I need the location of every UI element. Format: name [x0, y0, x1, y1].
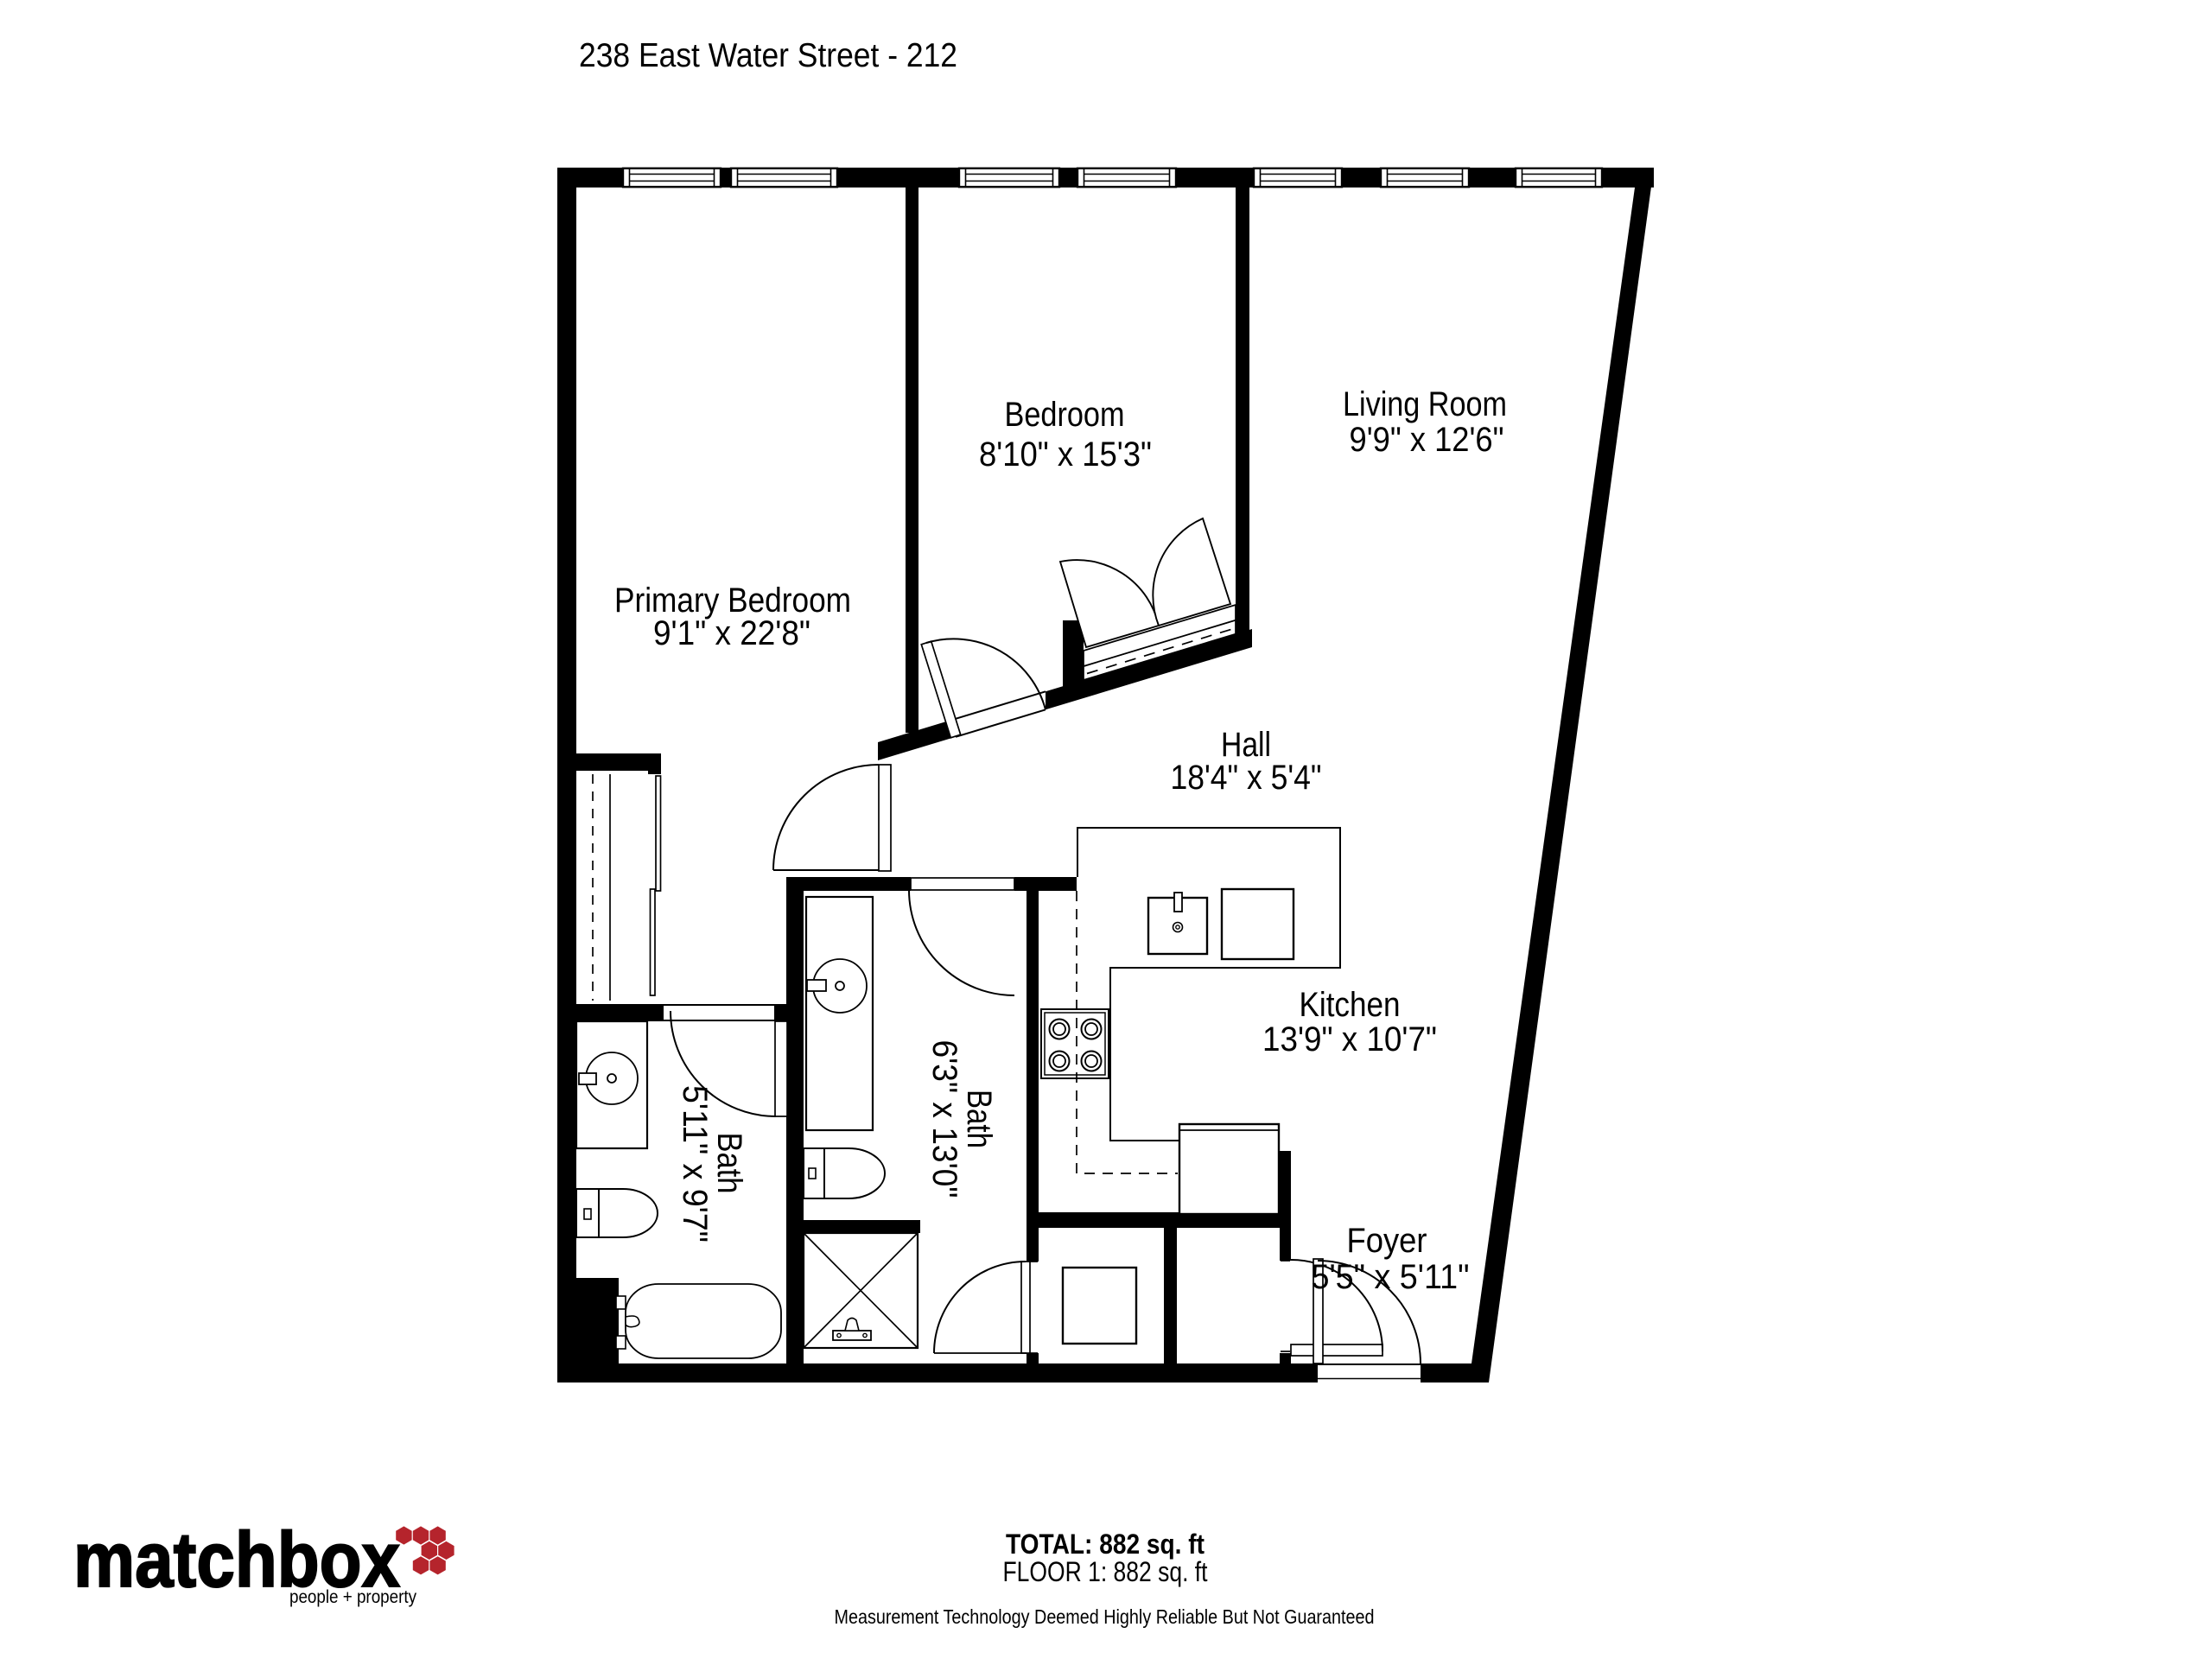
- svg-text:Bath: Bath: [960, 1090, 998, 1148]
- svg-text:5'11" x 9'7": 5'11" x 9'7": [676, 1085, 714, 1243]
- svg-text:TOTAL: 882 sq. ft: TOTAL: 882 sq. ft: [1006, 1529, 1205, 1560]
- svg-text:Measurement Technology Deemed: Measurement Technology Deemed Highly Rel…: [835, 1605, 1375, 1628]
- svg-text:FLOOR 1: 882 sq. ft: FLOOR 1: 882 sq. ft: [1003, 1556, 1208, 1587]
- svg-text:8'10" x 15'3": 8'10" x 15'3": [979, 435, 1152, 474]
- svg-text:9'1" x 22'8": 9'1" x 22'8": [653, 614, 810, 652]
- svg-text:Bath: Bath: [710, 1133, 748, 1194]
- svg-text:238 East Water Street - 212: 238 East Water Street - 212: [579, 37, 957, 74]
- svg-text:Kitchen: Kitchen: [1300, 986, 1401, 1024]
- svg-text:13'9" x 10'7": 13'9" x 10'7": [1262, 1020, 1437, 1058]
- svg-text:18'4" x 5'4": 18'4" x 5'4": [1171, 759, 1322, 797]
- svg-text:6'3" x 13'0": 6'3" x 13'0": [925, 1040, 963, 1198]
- svg-text:9'9" x 12'6": 9'9" x 12'6": [1350, 421, 1504, 459]
- svg-text:Living Room: Living Room: [1343, 385, 1507, 423]
- svg-text:Foyer: Foyer: [1347, 1222, 1427, 1260]
- svg-text:5'5" x 5'11": 5'5" x 5'11": [1312, 1258, 1470, 1296]
- svg-text:people + property: people + property: [289, 1586, 416, 1607]
- svg-text:Bedroom: Bedroom: [1005, 396, 1125, 434]
